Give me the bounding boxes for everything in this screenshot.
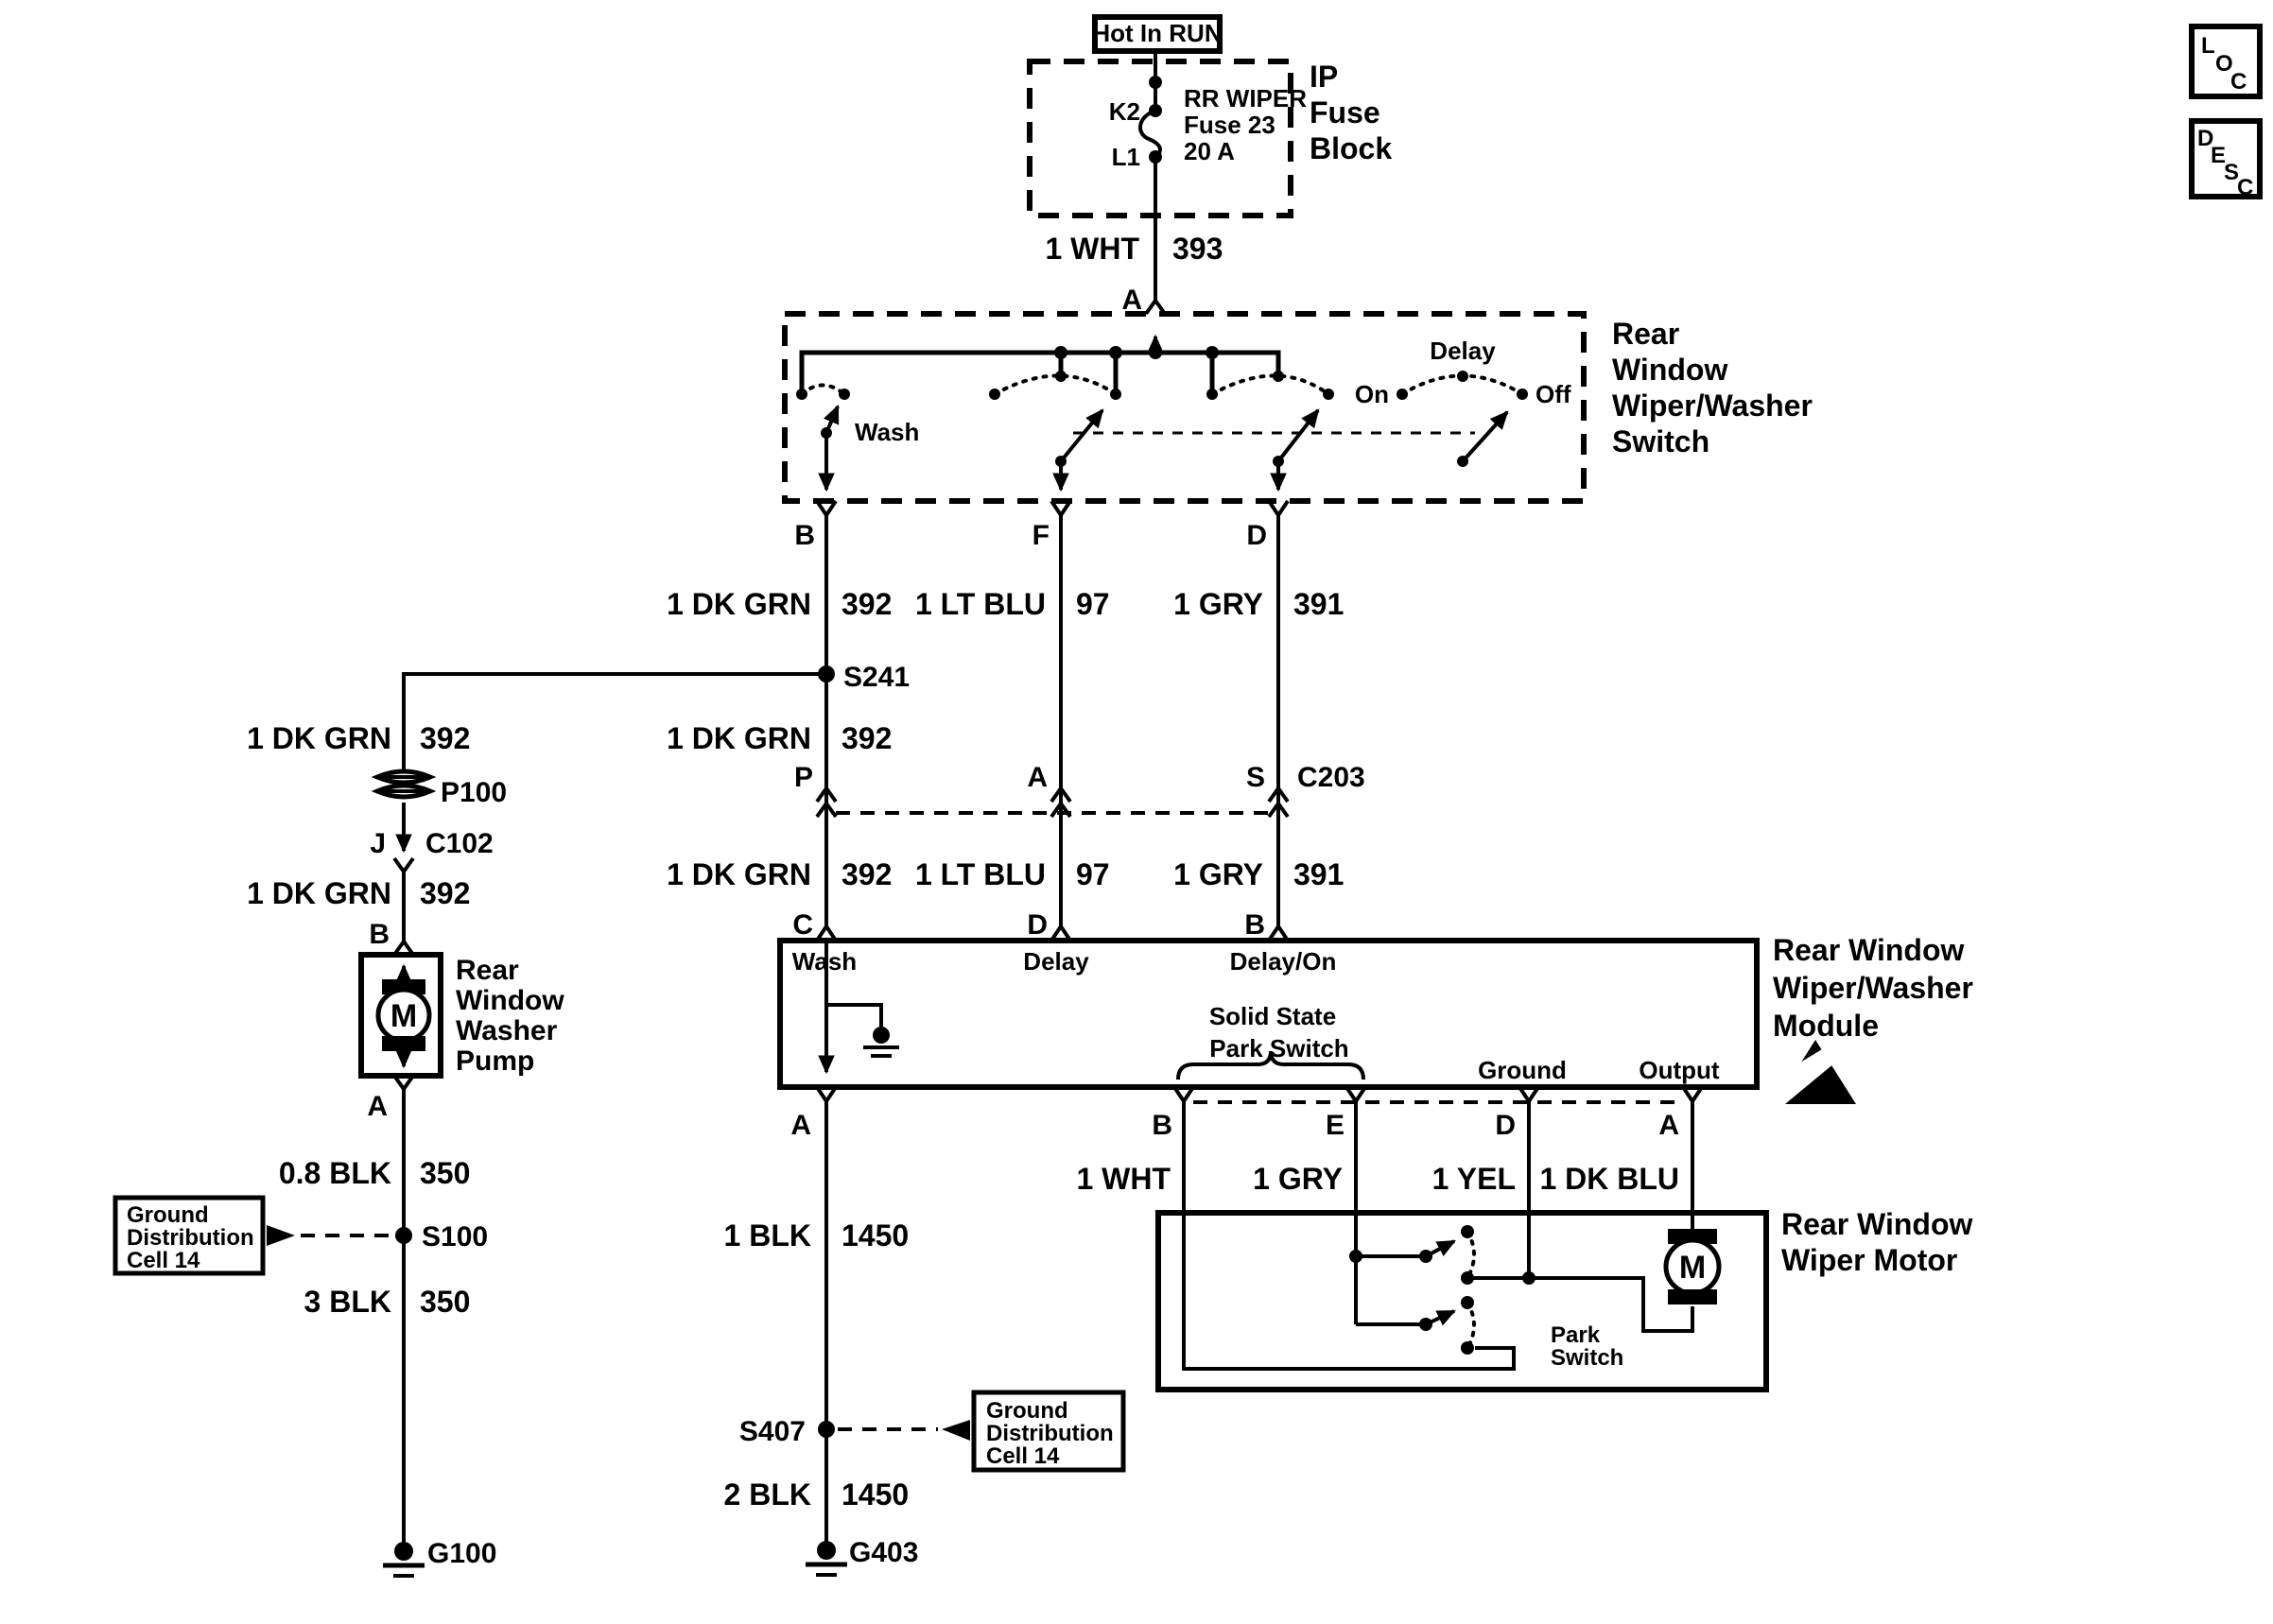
harness-wires: 1 DK GRN 392 1 LT BLU 97 1 GRY 391 S241 … — [667, 515, 1365, 941]
wire-circuit: 97 — [1076, 587, 1110, 621]
delay-feed-switch[interactable] — [989, 371, 1121, 490]
module-delay-on-label: Delay/On — [1230, 947, 1337, 976]
wire-circuit: 392 — [842, 587, 892, 621]
off-label: Off — [1536, 380, 1571, 408]
module-title-1: Rear Window — [1773, 933, 1965, 967]
wire-color: 1 GRY — [1173, 857, 1263, 891]
wiper-washer-module: Rear Window Wiper/Washer Module Wash Del… — [780, 933, 1973, 1141]
wiper-washer-switch: Rear Window Wiper/Washer Switch Wash — [785, 314, 1813, 551]
module-ground-label: Ground — [1478, 1056, 1567, 1084]
fuse-name: RR WIPER — [1184, 84, 1307, 112]
hot-in-run-label: Hot In RUN — [1092, 19, 1222, 47]
ref-arrowhead — [942, 1420, 970, 1441]
splice-s100-label: S100 — [422, 1221, 488, 1253]
fuse-rating: 20 A — [1184, 137, 1235, 165]
ground-ref-line3: Cell 14 — [127, 1248, 200, 1273]
module-delay-label: Delay — [1023, 947, 1089, 976]
module-terminal-d-out: D — [1495, 1110, 1516, 1141]
wire-393-color: 1 WHT — [1045, 232, 1139, 266]
c203-terminal-a: A — [1027, 762, 1048, 793]
wire-color: 1 DK BLU — [1539, 1162, 1679, 1196]
grommet-p100-icon — [377, 771, 430, 797]
switch-title-3: Wiper/Washer — [1612, 389, 1813, 423]
wire-393-circuit: 393 — [1172, 232, 1223, 266]
ip-fuse-block: K2 L1 RR WIPER Fuse 23 20 A IP Fuse Bloc… — [1030, 51, 1392, 216]
wire-color: 1 YEL — [1432, 1162, 1516, 1196]
wire-color: 0.8 BLK — [279, 1156, 391, 1190]
wash-position-label: Wash — [855, 418, 919, 446]
motor-park-label-2: Switch — [1551, 1345, 1623, 1371]
pump-title-3: Washer — [456, 1015, 558, 1046]
wire-color: 1 DK GRN — [667, 857, 811, 891]
loc-button[interactable]: L O C — [2192, 26, 2260, 96]
wire-circuit: 350 — [420, 1156, 470, 1190]
fuse-terminal-l1: L1 — [1112, 143, 1140, 171]
switch-terminal-b: B — [794, 520, 815, 551]
mode-selector-switch[interactable]: On Delay Off — [1355, 337, 1571, 467]
switch-terminal-f: F — [1032, 520, 1050, 551]
module-terminal-c: C — [792, 909, 813, 941]
loc-letter-c: C — [2230, 69, 2247, 95]
ground-ref-line2: Distribution — [127, 1225, 254, 1251]
pump-terminal-b: B — [369, 919, 390, 950]
module-terminal-e-out: E — [1326, 1110, 1345, 1141]
wire-circuit: 97 — [1076, 857, 1110, 891]
wiper-motor: Rear Window Wiper Motor Park Switch M — [1158, 1207, 1973, 1390]
on-feed-switch[interactable] — [1206, 371, 1334, 490]
fuse-number: Fuse 23 — [1184, 111, 1275, 139]
ground-distribution-ref-right[interactable]: Ground Distribution Cell 14 — [838, 1392, 1123, 1470]
wire-circuit: 392 — [420, 876, 470, 910]
splice-s100-dot — [395, 1227, 412, 1244]
ground-ref-line1: Ground — [986, 1398, 1068, 1424]
hot-in-run-source: Hot In RUN — [1092, 17, 1222, 51]
module-solid-state-label: Solid State — [1209, 1002, 1336, 1030]
wire-color: 1 LT BLU — [915, 587, 1046, 621]
wire-circuit: 1450 — [842, 1477, 909, 1512]
wire-color: 1 GRY — [1253, 1162, 1343, 1196]
pump-title-4: Pump — [456, 1045, 534, 1077]
wire-color: 1 LT BLU — [915, 857, 1046, 891]
switch-title-4: Switch — [1612, 424, 1709, 458]
c203-terminal-p: P — [794, 762, 813, 793]
switch-terminal-d: D — [1246, 520, 1267, 551]
ground-ref-line2: Distribution — [986, 1421, 1114, 1446]
fuse-terminal-k2: K2 — [1109, 97, 1140, 126]
fuse-block-title-1: IP — [1310, 60, 1338, 94]
c102-name: C102 — [425, 828, 494, 859]
wire-circuit: 391 — [1293, 857, 1344, 891]
junction-dot — [1149, 76, 1162, 89]
module-output-label: Output — [1639, 1056, 1720, 1084]
module-terminal-d: D — [1027, 909, 1048, 941]
delay-label: Delay — [1430, 337, 1496, 365]
wire-color: 1 DK GRN — [247, 721, 391, 755]
wire-circuit: 391 — [1293, 587, 1344, 621]
wire-circuit: 392 — [842, 857, 892, 891]
module-ground-branch: 1 BLK 1450 S407 Ground Distribution Cell… — [724, 1101, 1123, 1575]
module-terminal-a-out: A — [790, 1110, 811, 1141]
c203-terminal-s: S — [1246, 762, 1265, 793]
pump-motor-m: M — [390, 998, 417, 1034]
switch-title-1: Rear — [1612, 317, 1679, 351]
ground-ref-line3: Cell 14 — [986, 1443, 1060, 1469]
ground-g100-icon — [383, 1542, 425, 1576]
wire-color: 3 BLK — [304, 1285, 391, 1319]
wire-color: 1 GRY — [1173, 587, 1263, 621]
fuse-icon — [1140, 111, 1160, 157]
c203-name: C203 — [1297, 762, 1365, 793]
module-terminal-a2-out: A — [1658, 1110, 1679, 1141]
switch-title-2: Window — [1612, 353, 1727, 387]
module-title-2: Wiper/Washer — [1773, 971, 1973, 1005]
fuse-block-title-3: Block — [1310, 131, 1392, 165]
wash-blade — [826, 406, 838, 433]
ground-g403-label: G403 — [849, 1537, 918, 1568]
wire-color: 1 DK GRN — [247, 876, 391, 910]
wire-circuit: 1450 — [842, 1218, 909, 1253]
wire-393: 1 WHT 393 A — [1045, 157, 1223, 316]
motor-icon: M — [378, 979, 429, 1051]
ground-distribution-ref-left[interactable]: Ground Distribution Cell 14 — [115, 1198, 397, 1273]
splice-s407-label: S407 — [739, 1416, 806, 1447]
fuse-block-title-2: Fuse — [1310, 95, 1380, 130]
splice-s241-label: S241 — [843, 662, 910, 693]
motor-title-1: Rear Window — [1781, 1207, 1973, 1241]
c102-terminal-j: J — [370, 828, 386, 859]
wiper-motor-m: M — [1679, 1250, 1706, 1286]
on-label: On — [1355, 380, 1389, 408]
wire-circuit: 350 — [420, 1285, 470, 1319]
ground-g100-label: G100 — [427, 1538, 496, 1569]
esd-sensitive-icon — [1766, 1040, 1856, 1104]
motor-park-label-1: Park — [1551, 1322, 1601, 1348]
pump-terminal-a: A — [367, 1091, 388, 1122]
wire-circuit: 392 — [842, 721, 892, 755]
splice-s407-dot — [818, 1421, 835, 1438]
motor-title-2: Wiper Motor — [1781, 1243, 1957, 1277]
wire-color: 1 DK GRN — [667, 587, 811, 621]
wire-circuit: 392 — [420, 721, 470, 755]
c102-chevron — [394, 858, 413, 872]
pump-title-1: Rear — [456, 955, 519, 986]
switch-feed-bus — [802, 353, 1278, 394]
ground-g403-icon — [806, 1541, 847, 1575]
desc-button[interactable]: D E S C — [2192, 121, 2260, 200]
wire-color: 2 BLK — [724, 1477, 811, 1512]
wire-color: 1 BLK — [724, 1218, 811, 1253]
ref-arrowhead — [267, 1225, 295, 1246]
wiring-diagram: Hot In RUN K2 L1 RR WIPER Fuse 23 20 A I… — [0, 0, 2273, 1624]
module-terminal-b-out: B — [1152, 1110, 1172, 1141]
pump-title-2: Window — [456, 985, 564, 1016]
desc-letter-c: C — [2237, 175, 2253, 200]
wiring-diagram-page: Hot In RUN K2 L1 RR WIPER Fuse 23 20 A I… — [0, 0, 2273, 1624]
wire-color: 1 WHT — [1076, 1162, 1171, 1196]
wire-color: 1 DK GRN — [667, 721, 811, 755]
internal-ground-icon — [873, 1027, 890, 1044]
washer-pump: M Rear Window Washer Pump — [361, 955, 564, 1077]
grommet-p100-label: P100 — [441, 777, 507, 808]
wash-switch[interactable]: Wash — [796, 386, 919, 491]
module-park-switch-label: Park Switch — [1209, 1034, 1348, 1063]
module-title-3: Module — [1773, 1009, 1879, 1043]
ground-ref-line1: Ground — [127, 1202, 209, 1228]
washer-pump-branch: 1 DK GRN 392 P100 J C102 1 DK GRN 392 B … — [115, 674, 826, 1576]
module-terminal-b: B — [1244, 909, 1265, 941]
loc-letter-l: L — [2201, 33, 2215, 59]
